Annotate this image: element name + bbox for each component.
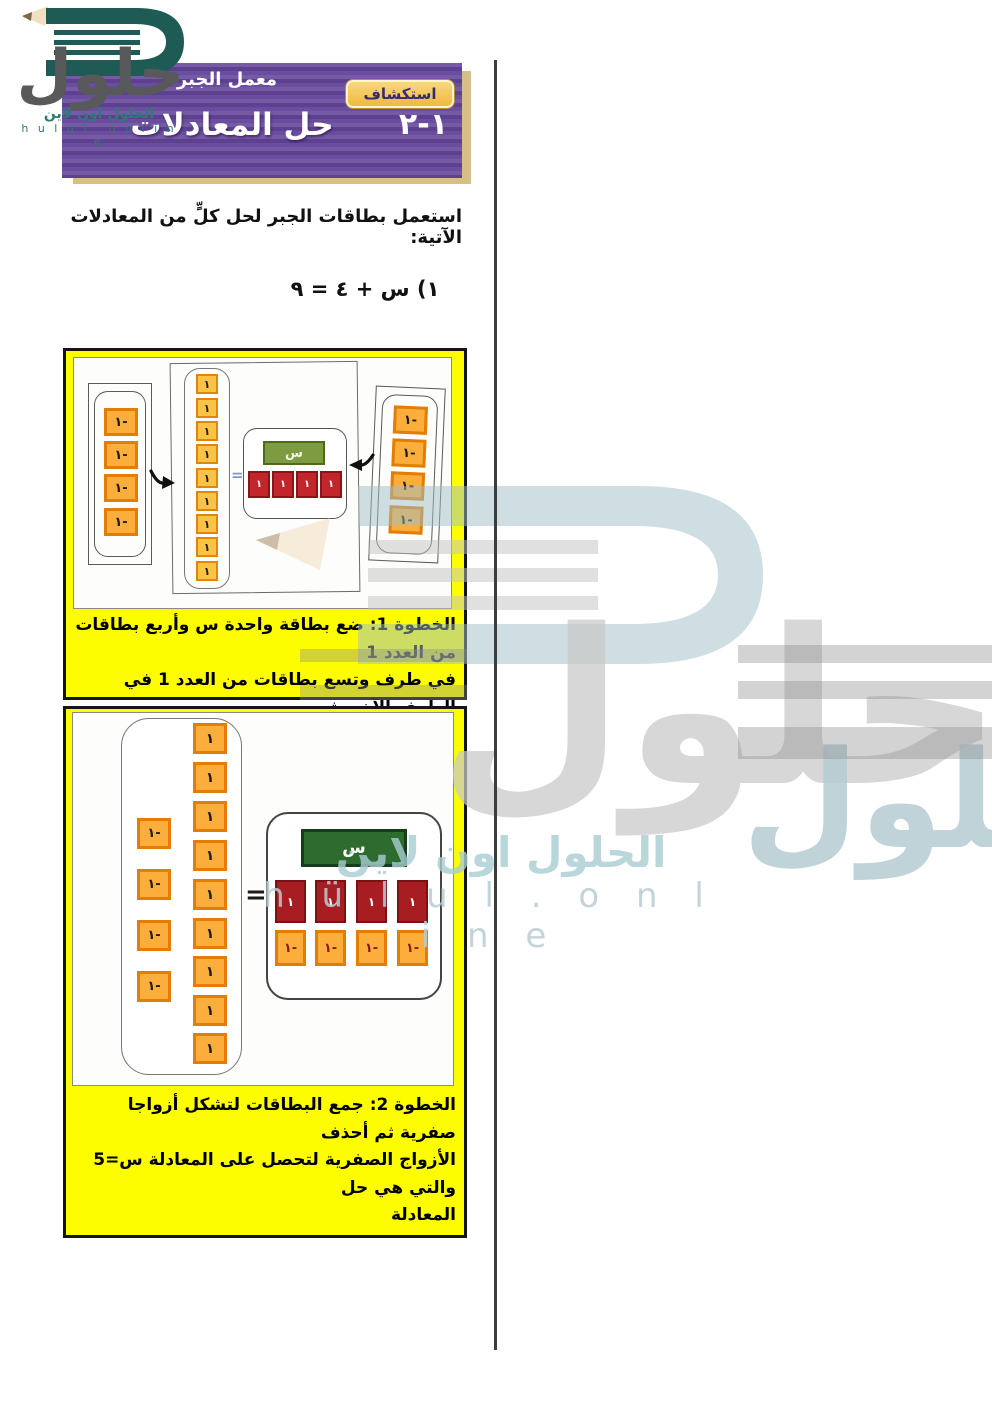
tile-label: ١ <box>304 479 310 490</box>
textbook-page: حلول الحلول اون لاين h u l u l . o n l i… <box>0 0 992 1403</box>
tile-label: ١ <box>256 479 262 490</box>
step2-line: المعادلة <box>72 1202 456 1230</box>
tile-label: ١ <box>280 479 286 490</box>
tile-one-red: ١ <box>275 880 306 923</box>
tile-label: ١ <box>206 848 215 864</box>
watermark-brand-blue: الحلول <box>742 722 992 879</box>
tile-label: ١- <box>147 877 160 892</box>
tile-label: ١ <box>287 895 294 909</box>
tile-one-red: ١ <box>320 471 342 498</box>
tile-negative-one: ١- <box>397 930 428 966</box>
tile-one: ١ <box>196 561 218 581</box>
tile-one-red: ١ <box>315 880 346 923</box>
explore-badge: استكشاف <box>346 80 454 108</box>
tile-one: ١ <box>193 762 227 793</box>
d1-left-group: ١- ١- ١- ١- <box>88 383 152 565</box>
pencil-tip <box>22 12 32 21</box>
tile-label: ١- <box>114 515 127 530</box>
tile-label: ١- <box>114 481 127 496</box>
tile-label: ١ <box>206 887 215 903</box>
tile-negative-one: ١- <box>393 405 428 434</box>
tile-label: ١- <box>284 941 297 956</box>
tile-one: ١ <box>196 468 218 488</box>
tile-one: ١ <box>193 801 227 832</box>
tile-one: ١ <box>193 723 227 754</box>
tile-label: ١ <box>204 541 211 554</box>
arrow-left-icon <box>348 452 376 476</box>
step2-line: الأزواج الصفرية لتحصل على المعادلة س=5 و… <box>72 1147 456 1202</box>
tile-one: ١ <box>193 956 227 987</box>
tile-one-red: ١ <box>248 471 270 498</box>
tile-label: ١ <box>206 731 215 747</box>
tile-label: ١- <box>147 826 160 841</box>
tile-one: ١ <box>193 840 227 871</box>
tile-negative-one: ١- <box>390 471 425 500</box>
tile-negative-one: ١- <box>104 441 138 469</box>
tile-label: ١ <box>409 895 416 909</box>
step1-line: الخطوة 1: ضع بطاقة واحدة س وأربع بطاقات … <box>72 612 456 667</box>
tile-label: ١ <box>204 425 211 438</box>
tile-label: ١- <box>403 412 417 428</box>
tile-one: ١ <box>196 374 218 394</box>
tile-one-red: ١ <box>397 880 428 923</box>
tile-negative-one: ١- <box>137 971 171 1002</box>
tile-label: ١ <box>206 809 215 825</box>
tile-label: ١ <box>206 964 215 980</box>
tile-label: ١ <box>328 479 334 490</box>
tile-label: ١ <box>204 472 211 485</box>
lesson-number: ١-٢ <box>399 107 448 142</box>
step2-text: الخطوة 2: جمع البطاقات لتشكل أزواجا صفري… <box>72 1092 456 1230</box>
tile-label: ١ <box>204 518 211 531</box>
tile-label: ١- <box>114 448 127 463</box>
tile-negative-one: ١- <box>275 930 306 966</box>
tile-negative-one: ١- <box>391 438 426 467</box>
tile-one: ١ <box>193 918 227 949</box>
watermark-brand-large: حلول <box>482 575 992 844</box>
tile-x: س <box>263 441 325 465</box>
tile-label: س <box>342 838 365 858</box>
tile-negative-one: ١- <box>104 508 138 536</box>
tile-negative-one: ١- <box>104 474 138 502</box>
tile-negative-one: ١- <box>137 818 171 849</box>
watermark-band <box>738 681 992 699</box>
tile-one: ١ <box>196 444 218 464</box>
tile-label: ١ <box>204 448 211 461</box>
tile-one: ١ <box>196 514 218 534</box>
intro-text: استعمل بطاقات الجبر لحل كلٍّ من المعادلا… <box>60 206 462 248</box>
book-line <box>54 30 140 35</box>
tile-label: ١- <box>399 512 413 528</box>
tile-label: ١- <box>401 478 415 494</box>
tile-label: ١ <box>368 895 375 909</box>
tile-label: ١- <box>324 941 337 956</box>
logo-latin-line: h u l u l . o n l i n e <box>14 122 184 148</box>
watermark-band <box>738 727 992 759</box>
tile-label: ١ <box>204 402 211 415</box>
tile-negative-one: ١- <box>315 930 346 966</box>
equation-1: ١) س + ٤ = ٩ <box>275 277 455 301</box>
tile-label: ١ <box>206 1003 215 1019</box>
tile-one-red: ١ <box>272 471 294 498</box>
tile-label: ١ <box>204 565 211 578</box>
tile-label: ١ <box>204 378 211 391</box>
step2-line: الخطوة 2: جمع البطاقات لتشكل أزواجا صفري… <box>72 1092 456 1147</box>
tile-label: ١ <box>204 495 211 508</box>
tile-negative-one: ١- <box>137 920 171 951</box>
tile-label: ١ <box>206 926 215 942</box>
tile-one: ١ <box>193 879 227 910</box>
arrow-right-icon <box>148 468 176 494</box>
tile-negative-one: ١- <box>104 408 138 436</box>
equals-sign: = <box>231 466 244 484</box>
tile-one: ١ <box>196 421 218 441</box>
tile-one: ١ <box>193 1033 227 1064</box>
tile-negative-one: ١- <box>388 505 423 534</box>
tile-one-red: ١ <box>356 880 387 923</box>
tile-label: ١ <box>327 895 334 909</box>
tile-negative-one: ١- <box>137 869 171 900</box>
tile-one: ١ <box>196 537 218 557</box>
watermark-band <box>738 645 992 663</box>
tile-label: ١- <box>365 941 378 956</box>
tile-label: ١- <box>114 415 127 430</box>
logo-arabic-line: الحلول اون لاين <box>14 106 184 122</box>
tile-label: س <box>285 446 303 461</box>
tile-label: ١- <box>406 941 419 956</box>
column-divider-line <box>494 60 497 1350</box>
tile-one: ١ <box>196 398 218 418</box>
tile-one: ١ <box>193 995 227 1026</box>
equals-sign: = <box>245 880 267 910</box>
d1-right-group: ١- ١- ١- ١- <box>368 386 446 564</box>
tile-x: س <box>301 829 407 867</box>
tile-negative-one: ١- <box>356 930 387 966</box>
tile-one: ١ <box>196 491 218 511</box>
tile-label: ١- <box>402 445 416 461</box>
tile-one-red: ١ <box>296 471 318 498</box>
tile-label: ١- <box>147 928 160 943</box>
tile-label: ١ <box>206 770 215 786</box>
tile-label: ١- <box>147 979 160 994</box>
logo-brand-text: حلول <box>8 42 193 106</box>
tile-label: ١ <box>206 1041 215 1057</box>
